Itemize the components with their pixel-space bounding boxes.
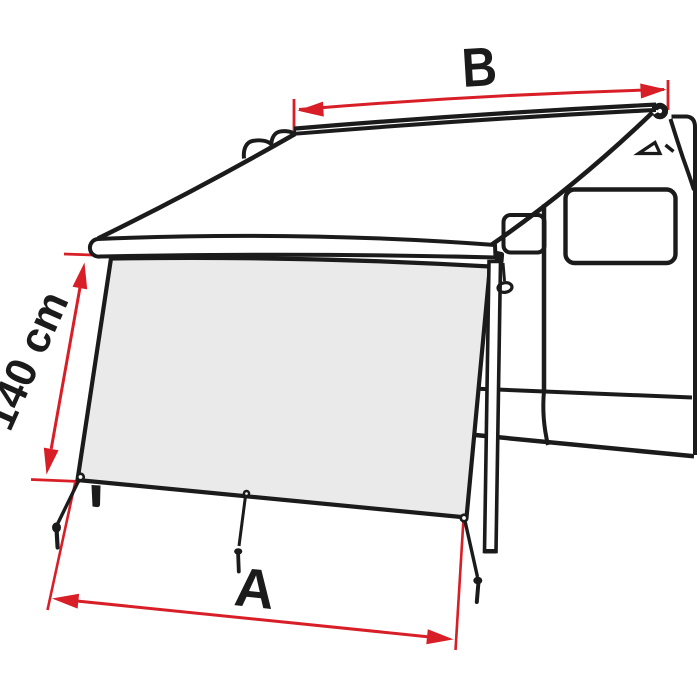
svg-text:B: B [460,35,499,99]
svg-text:A: A [232,555,278,621]
